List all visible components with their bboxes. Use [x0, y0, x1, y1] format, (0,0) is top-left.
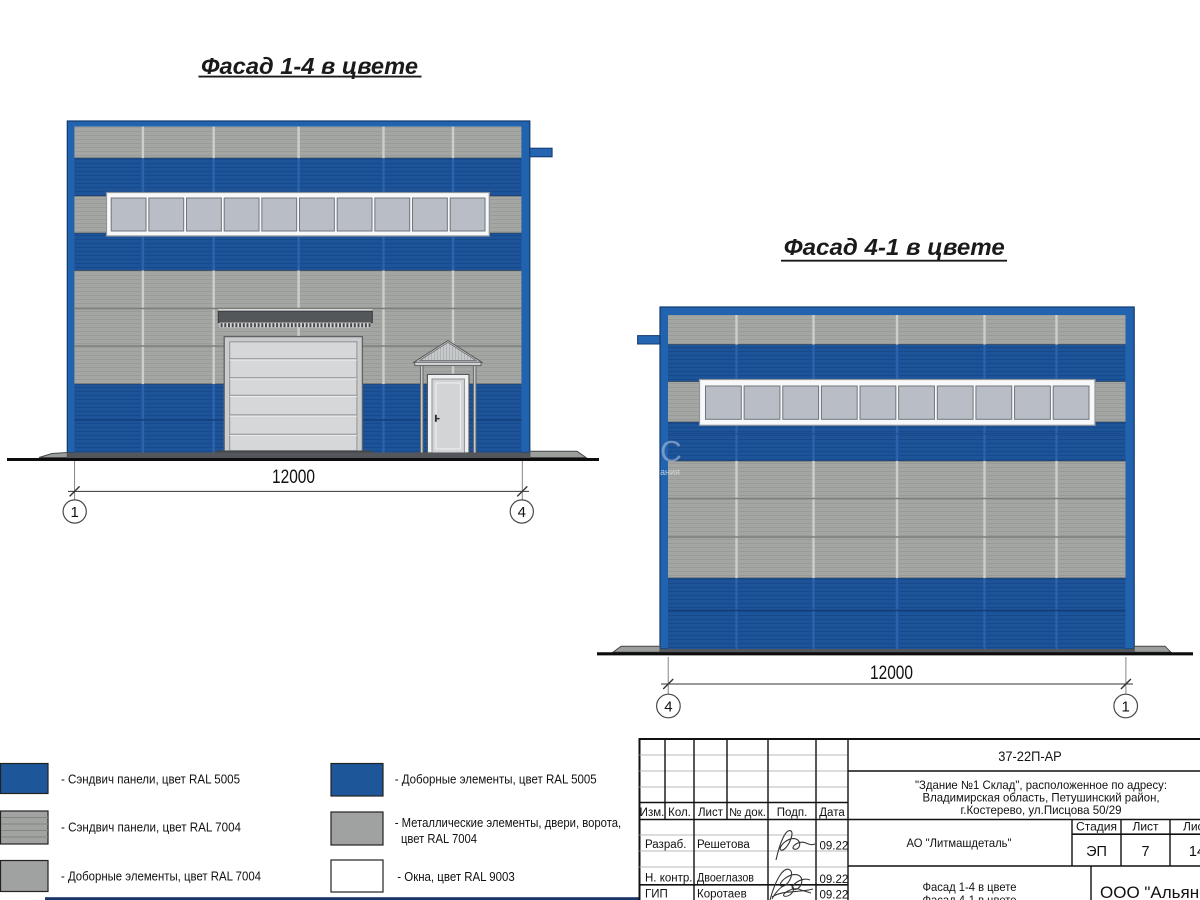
svg-text:Дата: Дата: [819, 807, 845, 819]
svg-text:ания: ания: [660, 467, 680, 477]
svg-text:Стадия: Стадия: [1076, 820, 1117, 834]
svg-text:09.22: 09.22: [820, 890, 849, 900]
svg-text:Лист: Лист: [1183, 820, 1200, 834]
svg-text:Решетова: Решетова: [697, 839, 750, 851]
svg-text:ГИП: ГИП: [645, 889, 668, 900]
svg-text:Подп.: Подп.: [777, 807, 808, 819]
svg-text:- Металлические элементы, двер: - Металлические элементы, двери, ворота,: [395, 815, 622, 830]
svg-text:Фасад 1-4 в цвете: Фасад 1-4 в цвете: [201, 53, 418, 79]
svg-text:С: С: [660, 436, 682, 469]
svg-text:Изм.: Изм.: [640, 807, 665, 819]
svg-text:Кол.: Кол.: [668, 807, 691, 819]
svg-text:12000: 12000: [272, 467, 315, 488]
svg-text:Двоеглазов: Двоеглазов: [697, 873, 754, 885]
svg-text:Н. контр.: Н. контр.: [645, 873, 692, 885]
svg-text:Лист: Лист: [698, 807, 724, 819]
svg-text:1: 1: [71, 504, 79, 521]
svg-text:7: 7: [1141, 844, 1149, 860]
svg-text:ООО "Альянспроект": ООО "Альянспроект": [1100, 883, 1200, 900]
svg-text:Разраб.: Разраб.: [645, 839, 686, 851]
svg-text:- Сэндвич панели, цвет RAL 700: - Сэндвич панели, цвет RAL 7004: [61, 820, 241, 835]
svg-text:4: 4: [518, 504, 526, 521]
svg-text:14: 14: [1189, 844, 1200, 860]
svg-text:- Доборные элементы, цвет RAL: - Доборные элементы, цвет RAL 5005: [395, 772, 597, 787]
svg-text:АО "Литмашдеталь": АО "Литмашдеталь": [907, 836, 1012, 850]
svg-text:ЭП: ЭП: [1086, 844, 1107, 860]
svg-text:09.22: 09.22: [820, 841, 849, 853]
svg-text:Фасад 4-1 в цвете: Фасад 4-1 в цвете: [923, 893, 1017, 900]
svg-text:№ док.: № док.: [729, 807, 766, 819]
svg-text:Фасад 4-1 в цвете: Фасад 4-1 в цвете: [784, 234, 1005, 260]
svg-text:Лист: Лист: [1132, 820, 1159, 834]
svg-text:- Сэндвич панели, цвет RAL 500: - Сэндвич панели, цвет RAL 5005: [61, 772, 240, 787]
svg-text:12000: 12000: [870, 663, 913, 684]
svg-text:37-22П-АР: 37-22П-АР: [998, 749, 1062, 764]
svg-text:09.22: 09.22: [820, 874, 849, 886]
svg-text:г.Костерево, ул.Писцова 50/29: г.Костерево, ул.Писцова 50/29: [961, 803, 1122, 817]
svg-text:Коротаев: Коротаев: [697, 889, 747, 900]
svg-text:4: 4: [664, 698, 672, 715]
svg-text:- Окна, цвет RAL 9003: - Окна, цвет RAL 9003: [397, 869, 515, 884]
svg-text:1: 1: [1122, 698, 1130, 715]
svg-text:цвет RAL 7004: цвет RAL 7004: [401, 831, 477, 846]
svg-text:- Доборные элементы, цвет RAL: - Доборные элементы, цвет RAL 7004: [61, 869, 261, 884]
svg-text:Фасад 1-4 в цвете: Фасад 1-4 в цвете: [923, 880, 1017, 894]
